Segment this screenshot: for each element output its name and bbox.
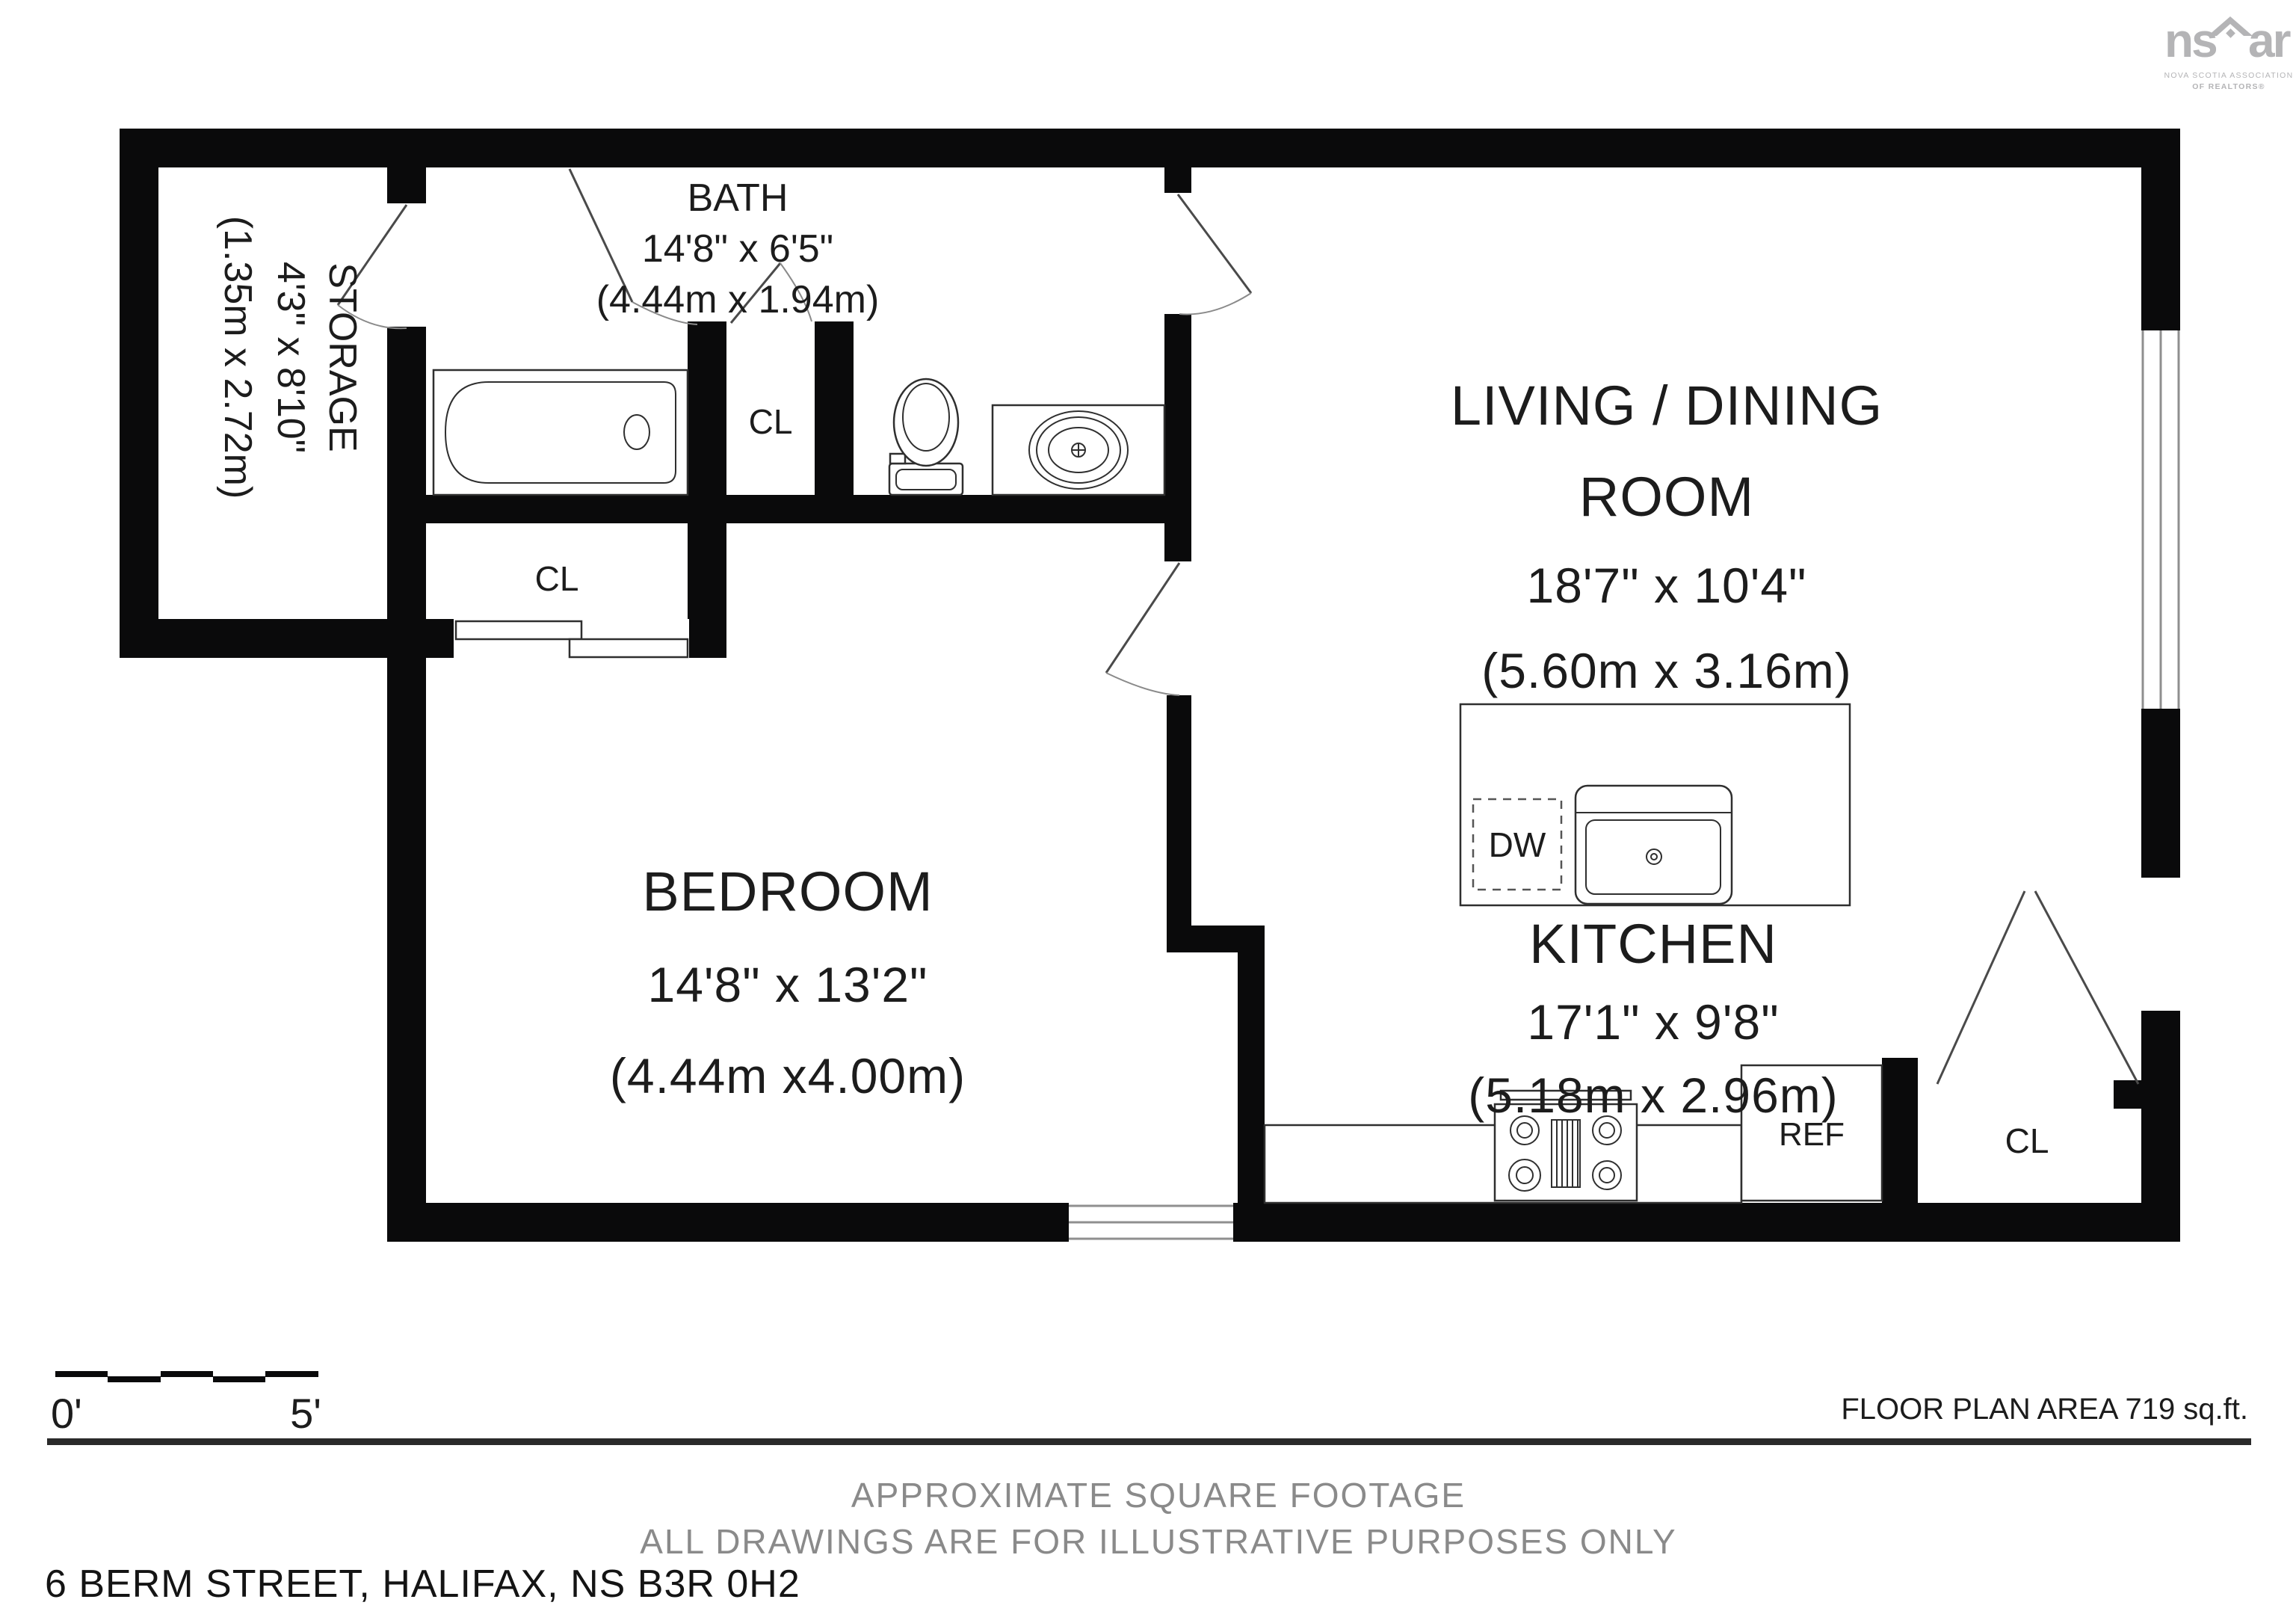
- kitchen-name: KITCHEN: [1529, 913, 1777, 975]
- floor-plan: BATH 14'8" x 6'5" (4.44m x 1.94m) STORAG…: [0, 0, 2296, 1623]
- wall-entrycl-right-stub: [2114, 1080, 2141, 1109]
- bath-closet-label: CL: [749, 402, 793, 441]
- wall-divider-lower: [1238, 952, 1265, 1203]
- scale-dash-3: [161, 1371, 213, 1377]
- wall-bathcl-right-stub: [815, 321, 854, 495]
- bath-dims: 14'8" x 6'5": [642, 227, 833, 271]
- living-entry-door-arc: [1179, 293, 1251, 314]
- footer-divider: [47, 1438, 2251, 1445]
- kitchen-metric: (5.18m x 2.96m): [1468, 1068, 1839, 1123]
- scale-dash-2: [108, 1376, 161, 1382]
- bath-name: BATH: [688, 176, 789, 220]
- wall-bath-floor: [387, 495, 1191, 523]
- address: 6 BERM STREET, HALIFAX, NS B3R 0H2: [45, 1562, 800, 1606]
- wall-storage-left: [120, 167, 158, 658]
- wall-storage-door-stub: [387, 167, 426, 203]
- floor-plan-area-note: FLOOR PLAN AREA 719 sq.ft.: [1841, 1393, 2248, 1426]
- living-name2: ROOM: [1579, 466, 1754, 528]
- scale-start-label: 0': [51, 1390, 82, 1437]
- bedroom-metric: (4.44m x4.00m): [610, 1048, 966, 1103]
- entry-closet-door-left: [1937, 891, 2025, 1084]
- kitchen-dims: 17'1" x 9'8": [1527, 994, 1779, 1050]
- bedroom-name: BEDROOM: [642, 860, 933, 923]
- wall-divider-upper: [1164, 314, 1191, 561]
- footer: FLOOR PLAN AREA 719 sq.ft. APPROXIMATE S…: [45, 1393, 2251, 1606]
- entry-closet-label: CL: [2005, 1121, 2049, 1160]
- bedroom-door-leaf: [1106, 563, 1179, 673]
- wall-divider-jog: [1167, 926, 1265, 952]
- door-gap-right-wall: [2140, 878, 2182, 1011]
- wall-divider-top-stub: [1164, 167, 1191, 193]
- toilet-flush-handle: [890, 454, 905, 464]
- living-dims: 18'7" x 10'4": [1527, 558, 1807, 613]
- entry-closet-door-right: [2035, 891, 2138, 1084]
- wall-divider-mid: [1167, 695, 1191, 926]
- storage-name: STORAGE: [321, 262, 364, 452]
- storage-metric: (1.35m x 2.72m): [216, 216, 259, 499]
- wall-top: [120, 129, 2180, 167]
- scale-bar: 0' 5': [51, 1371, 321, 1437]
- living-metric: (5.60m x 3.16m): [1481, 643, 1852, 698]
- storage-dims: 4'3" x 8'10": [269, 262, 312, 453]
- logo-tagline1: NOVA SCOTIA ASSOCIATION: [2164, 71, 2293, 80]
- fridge-label: REF: [1779, 1116, 1845, 1153]
- island-sink-outer: [1576, 786, 1732, 904]
- bath-metric: (4.44m x 1.94m): [596, 278, 880, 321]
- bedroom-door-arc: [1106, 673, 1179, 695]
- hall-closet-label: CL: [535, 559, 579, 598]
- room-labels: BATH 14'8" x 6'5" (4.44m x 1.94m) STORAG…: [216, 176, 2049, 1160]
- logo-suffix: ar: [2248, 13, 2291, 67]
- logo-tagline2: OF REALTORS®: [2192, 82, 2265, 91]
- sliding-door-panel-left: [456, 621, 581, 639]
- footer-line2: ALL DRAWINGS ARE FOR ILLUSTRATIVE PURPOS…: [640, 1522, 1676, 1561]
- wall-entrycl-left-stub: [1882, 1058, 1918, 1203]
- wall-bedroom-left: [387, 658, 426, 1242]
- wall-closet-bottom: [387, 619, 456, 658]
- scale-dash-5: [265, 1371, 318, 1377]
- scale-dash-4: [213, 1376, 265, 1382]
- scale-dash-1: [55, 1371, 108, 1377]
- bedroom-dims: 14'8" x 13'2": [648, 957, 928, 1012]
- living-name: LIVING / DINING: [1451, 375, 1883, 437]
- wall-bottom: [387, 1203, 2180, 1242]
- logo-diamond-icon: [2226, 28, 2235, 38]
- logo-prefix: ns: [2164, 13, 2216, 67]
- footer-line1: APPROXIMATE SQUARE FOOTAGE: [851, 1476, 1466, 1515]
- wall-storage-bottom: [120, 619, 426, 658]
- nsar-logo: ns ar NOVA SCOTIA ASSOCIATION OF REALTOR…: [2164, 13, 2293, 91]
- living-entry-door-leaf: [1178, 194, 1251, 293]
- scale-end-label: 5': [290, 1390, 321, 1437]
- wall-closet-stub: [688, 321, 726, 658]
- wall-storage-right: [387, 327, 426, 658]
- dishwasher-label: DW: [1489, 825, 1546, 864]
- sliding-door-panel-right: [570, 639, 688, 657]
